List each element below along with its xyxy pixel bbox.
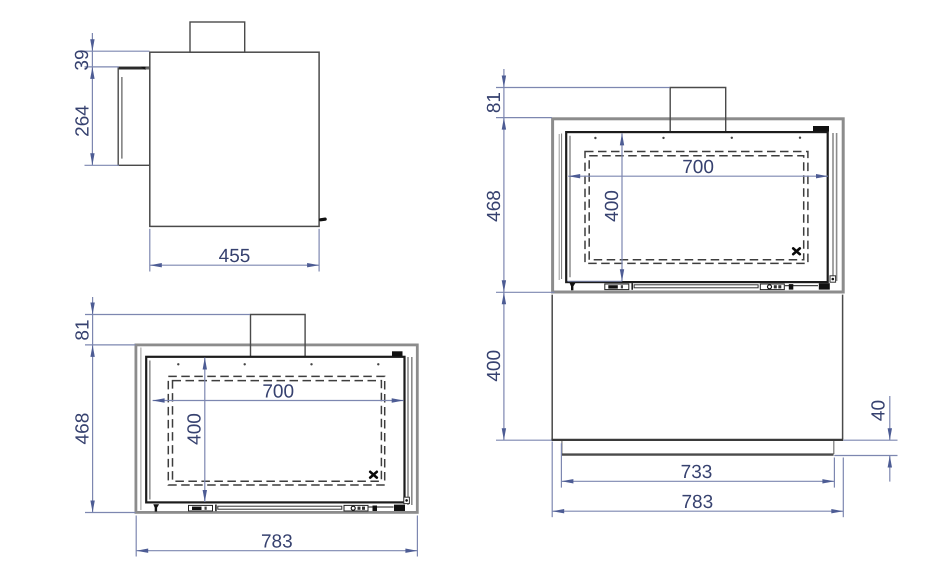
svg-text:400: 400 — [185, 413, 206, 445]
svg-text:700: 700 — [262, 381, 294, 402]
svg-text:468: 468 — [73, 413, 94, 445]
svg-text:40: 40 — [868, 400, 889, 421]
svg-text:264: 264 — [73, 105, 94, 137]
svg-text:39: 39 — [72, 49, 93, 70]
svg-text:733: 733 — [681, 462, 713, 483]
svg-text:468: 468 — [484, 190, 505, 222]
svg-text:81: 81 — [484, 92, 505, 113]
svg-text:400: 400 — [602, 190, 623, 222]
svg-text:455: 455 — [219, 246, 251, 267]
svg-text:400: 400 — [484, 350, 505, 382]
svg-text:700: 700 — [682, 157, 714, 178]
svg-text:81: 81 — [73, 319, 94, 340]
svg-text:783: 783 — [261, 532, 293, 553]
svg-text:783: 783 — [681, 492, 713, 513]
